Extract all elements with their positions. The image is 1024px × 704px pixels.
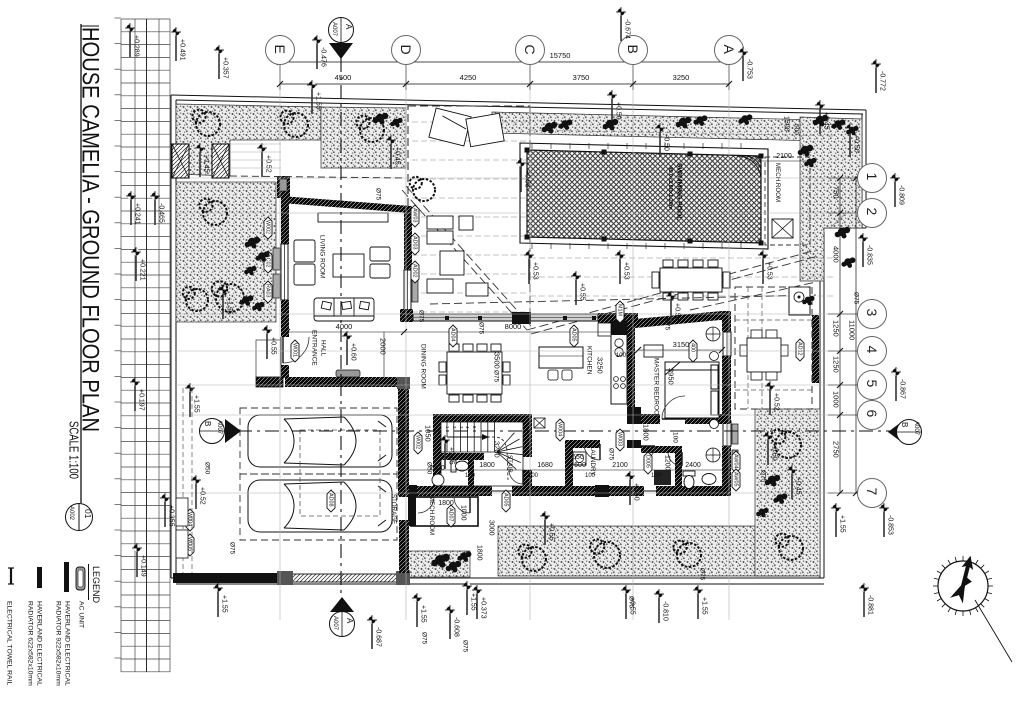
svg-text:1250: 1250: [831, 320, 840, 337]
svg-text:1200: 1200: [663, 455, 670, 471]
svg-text:Ø75: Ø75: [462, 640, 469, 653]
svg-text:AD05: AD05: [502, 493, 508, 506]
svg-text:1800: 1800: [475, 545, 482, 561]
svg-text:4000: 4000: [336, 322, 353, 331]
svg-text:1500: 1500: [782, 116, 789, 132]
svg-text:Ø50: Ø50: [426, 462, 433, 475]
svg-text:Ø75: Ø75: [493, 370, 500, 383]
svg-text:B: B: [203, 421, 212, 426]
svg-text:+0.221: +0.221: [138, 259, 145, 281]
svg-text:-0.753: -0.753: [745, 59, 752, 79]
svg-text:+0.491: +0.491: [178, 39, 185, 61]
svg-text:3000: 3000: [487, 520, 494, 536]
svg-text:W002: W002: [414, 435, 420, 449]
svg-text:100: 100: [585, 473, 596, 479]
svg-text:400: 400: [689, 343, 695, 352]
svg-text:AW03: AW03: [411, 208, 417, 222]
svg-text:AC UNIT: AC UNIT: [78, 601, 85, 628]
svg-text:-0.881: -0.881: [866, 595, 873, 615]
svg-text:2100: 2100: [776, 153, 792, 160]
svg-text:A007: A007: [913, 421, 919, 436]
svg-text:-0.476: -0.476: [319, 47, 326, 67]
svg-text:01: 01: [83, 509, 93, 519]
svg-text:A: A: [344, 24, 353, 30]
svg-text:1000: 1000: [459, 505, 466, 521]
svg-text:750: 750: [831, 186, 840, 199]
svg-text:650: 650: [572, 454, 584, 461]
svg-text:500: 500: [793, 124, 800, 135]
svg-text:RA03: RA03: [264, 284, 270, 298]
svg-text:4500: 4500: [335, 73, 352, 82]
svg-text:7: 7: [864, 488, 880, 496]
svg-text:15750: 15750: [550, 51, 571, 60]
svg-text:Ø75: Ø75: [421, 632, 428, 645]
svg-text:+0.357: +0.357: [221, 57, 228, 79]
svg-text:+0.50: +0.50: [614, 102, 621, 120]
svg-text:LIVING ROOM: LIVING ROOM: [319, 235, 326, 278]
svg-text:+1.55: +1.55: [469, 593, 476, 611]
svg-text:ELECTRICAL TOWEL RAIL: ELECTRICAL TOWEL RAIL: [6, 601, 13, 685]
svg-text:LAUNDRY: LAUNDRY: [589, 446, 596, 475]
svg-text:AD02: AD02: [411, 264, 417, 278]
svg-text:A: A: [721, 45, 737, 55]
svg-text:600: 600: [574, 462, 586, 469]
svg-text:+0.60: +0.60: [632, 483, 639, 501]
svg-text:2000: 2000: [378, 338, 387, 355]
svg-text:-0.465: -0.465: [157, 203, 164, 223]
svg-text:HAVERLAND ELECTRICAL: HAVERLAND ELECTRICAL: [64, 601, 71, 686]
svg-text:LEGEND: LEGEND: [91, 566, 101, 604]
svg-text:1: 1: [864, 173, 880, 181]
svg-text:RADIATOR 922x582x10mm: RADIATOR 922x582x10mm: [55, 601, 62, 686]
svg-text:5: 5: [864, 380, 880, 388]
svg-text:3: 3: [864, 309, 880, 317]
svg-text:HALL: HALL: [320, 340, 327, 357]
svg-text:100: 100: [465, 473, 476, 479]
svg-text:4: 4: [864, 346, 880, 354]
svg-text:-0.50: -0.50: [662, 135, 669, 151]
svg-text:HAVERLAND ELECTRICAL: HAVERLAND ELECTRICAL: [36, 601, 43, 686]
svg-text:MECH.ROOM: MECH.ROOM: [774, 163, 781, 202]
svg-text:A007: A007: [331, 22, 337, 37]
svg-text:1800: 1800: [641, 424, 650, 441]
svg-text:W002: W002: [264, 220, 270, 234]
svg-text:Ø75: Ø75: [664, 318, 671, 331]
svg-text:D: D: [398, 45, 414, 55]
svg-text:W003: W003: [616, 432, 622, 446]
svg-text:+0.53: +0.53: [523, 170, 530, 188]
svg-text:AD05: AD05: [570, 328, 576, 342]
svg-text:AD07: AD07: [447, 508, 453, 522]
svg-text:Ø50: Ø50: [204, 462, 211, 475]
svg-text:100: 100: [616, 352, 627, 359]
svg-text:STAIR: STAIR: [506, 455, 513, 473]
svg-text:1250: 1250: [831, 356, 840, 373]
svg-text:Ø75: Ø75: [699, 568, 706, 581]
svg-text:Ø75: Ø75: [375, 188, 382, 201]
svg-text:-0.687: -0.687: [374, 627, 381, 647]
svg-text:HOUSE CAMELIA - GROUND FLOOR P: HOUSE CAMELIA - GROUND FLOOR PLAN: [76, 27, 103, 432]
svg-text:+0.241: +0.241: [133, 203, 140, 225]
svg-text:+1.55: +1.55: [838, 515, 845, 533]
svg-text:3200: 3200: [492, 441, 501, 458]
svg-text:-0.867: -0.867: [898, 379, 905, 399]
svg-text:MECH.ROOM: MECH.ROOM: [428, 496, 435, 535]
svg-text:+0.52: +0.52: [772, 393, 779, 411]
svg-text:+0.355: +0.355: [167, 505, 174, 527]
svg-text:-0.810: -0.810: [661, 601, 668, 621]
svg-text:+1.55: +1.55: [220, 595, 227, 613]
svg-text:Ø75: Ø75: [418, 310, 425, 323]
svg-text:2100: 2100: [612, 462, 628, 469]
svg-text:A002: A002: [68, 506, 74, 521]
svg-text:+1.55: +1.55: [314, 92, 321, 110]
svg-text:-0.853: -0.853: [886, 515, 893, 535]
svg-text:W001: W001: [291, 343, 297, 357]
svg-text:+0.45: +0.45: [393, 147, 400, 165]
svg-text:RADIATOR 622x582x10mm: RADIATOR 622x582x10mm: [27, 601, 34, 686]
svg-text:2400: 2400: [685, 462, 701, 469]
svg-text:+0.52: +0.52: [264, 155, 271, 173]
svg-text:A007: A007: [216, 420, 222, 435]
svg-text:+0.55: +0.55: [269, 337, 276, 355]
svg-text:4000: 4000: [831, 246, 840, 263]
svg-text:1000: 1000: [831, 391, 840, 408]
svg-text:100: 100: [528, 473, 539, 479]
svg-text:6: 6: [864, 410, 880, 418]
svg-text:AD03: AD03: [411, 236, 417, 250]
svg-text:Ø75: Ø75: [478, 322, 485, 335]
svg-text:8000: 8000: [505, 322, 522, 331]
svg-text:3500: 3500: [492, 352, 501, 369]
svg-text:+0.55: +0.55: [673, 303, 680, 321]
svg-text:3750: 3750: [573, 73, 590, 82]
svg-text:AD08: AD08: [327, 493, 333, 507]
svg-text:+0.55: +0.55: [547, 523, 554, 541]
svg-text:-0.608: -0.608: [452, 617, 459, 637]
svg-text:Ø75: Ø75: [853, 292, 860, 305]
svg-text:+0.197: +0.197: [137, 389, 144, 411]
svg-text:1050: 1050: [423, 425, 432, 442]
svg-text:3150: 3150: [673, 340, 690, 349]
svg-text:11000: 11000: [847, 320, 856, 340]
svg-text:100: 100: [672, 432, 679, 443]
svg-text:D005: D005: [644, 455, 650, 468]
svg-text:3250: 3250: [673, 73, 690, 82]
svg-text:3950: 3950: [666, 368, 675, 385]
svg-text:AW05: AW05: [732, 472, 738, 486]
svg-text:KITCHEN: KITCHEN: [586, 346, 593, 375]
svg-text:+1.55: +1.55: [192, 395, 199, 413]
svg-text:1800: 1800: [479, 462, 495, 469]
svg-text:+0.373: +0.373: [479, 597, 486, 619]
svg-text:E: E: [272, 45, 288, 54]
svg-text:AD12: AD12: [796, 342, 802, 356]
svg-text:+0.53: +0.53: [765, 262, 772, 280]
svg-text:SCALE 1:100: SCALE 1:100: [66, 421, 81, 479]
svg-text:A007: A007: [332, 616, 338, 631]
svg-text:+0.55: +0.55: [447, 447, 454, 465]
svg-text:C: C: [522, 45, 538, 55]
svg-text:MASTER BEDROOM: MASTER BEDROOM: [653, 358, 660, 420]
svg-text:+1.45: +1.45: [202, 155, 209, 173]
svg-text:B: B: [900, 422, 909, 427]
svg-text:+0.60: +0.60: [349, 343, 356, 361]
svg-text:2: 2: [864, 208, 880, 216]
svg-text:+1.55: +1.55: [419, 605, 426, 623]
svg-text:Ø75: Ø75: [608, 448, 615, 461]
svg-text:-0.772: -0.772: [878, 71, 885, 91]
svg-text:3250: 3250: [595, 357, 604, 374]
svg-text:100: 100: [651, 473, 662, 479]
svg-text:M1M: M1M: [616, 304, 622, 316]
svg-text:STORAGE: STORAGE: [390, 494, 397, 524]
svg-text:2750: 2750: [831, 441, 840, 458]
svg-text:A: A: [345, 618, 354, 624]
svg-text:AW04: AW04: [732, 454, 738, 468]
svg-text:4250: 4250: [460, 73, 477, 82]
svg-text:AD04: AD04: [449, 328, 455, 342]
svg-text:1680: 1680: [537, 462, 553, 469]
svg-text:ENTRANCE: ENTRANCE: [311, 330, 318, 366]
svg-text:+0.50: +0.50: [852, 135, 859, 153]
svg-text:Ø75: Ø75: [229, 542, 236, 555]
svg-text:W004: W004: [556, 422, 562, 436]
svg-text:DINING ROOM: DINING ROOM: [420, 344, 427, 389]
svg-text:-0.835: -0.835: [865, 245, 872, 265]
svg-text:+0.52: +0.52: [198, 487, 205, 505]
svg-text:+0.55: +0.55: [578, 283, 585, 301]
svg-text:B: B: [625, 45, 641, 54]
svg-text:SWIMMING POOL: SWIMMING POOL: [676, 163, 683, 220]
svg-text:+0.53: +0.53: [531, 262, 538, 280]
svg-text:+1.55: +1.55: [700, 597, 707, 615]
svg-text:-0.809: -0.809: [897, 185, 904, 205]
svg-text:45.0x2.60x1.20m: 45.0x2.60x1.20m: [667, 166, 673, 210]
svg-text:Ø75: Ø75: [628, 596, 635, 609]
svg-text:+0.45: +0.45: [794, 477, 801, 495]
svg-text:-0.674: -0.674: [623, 19, 630, 39]
svg-text:+0.149: +0.149: [139, 555, 146, 577]
svg-text:+0.289: +0.289: [132, 35, 139, 57]
svg-text:+0.53: +0.53: [622, 262, 629, 280]
